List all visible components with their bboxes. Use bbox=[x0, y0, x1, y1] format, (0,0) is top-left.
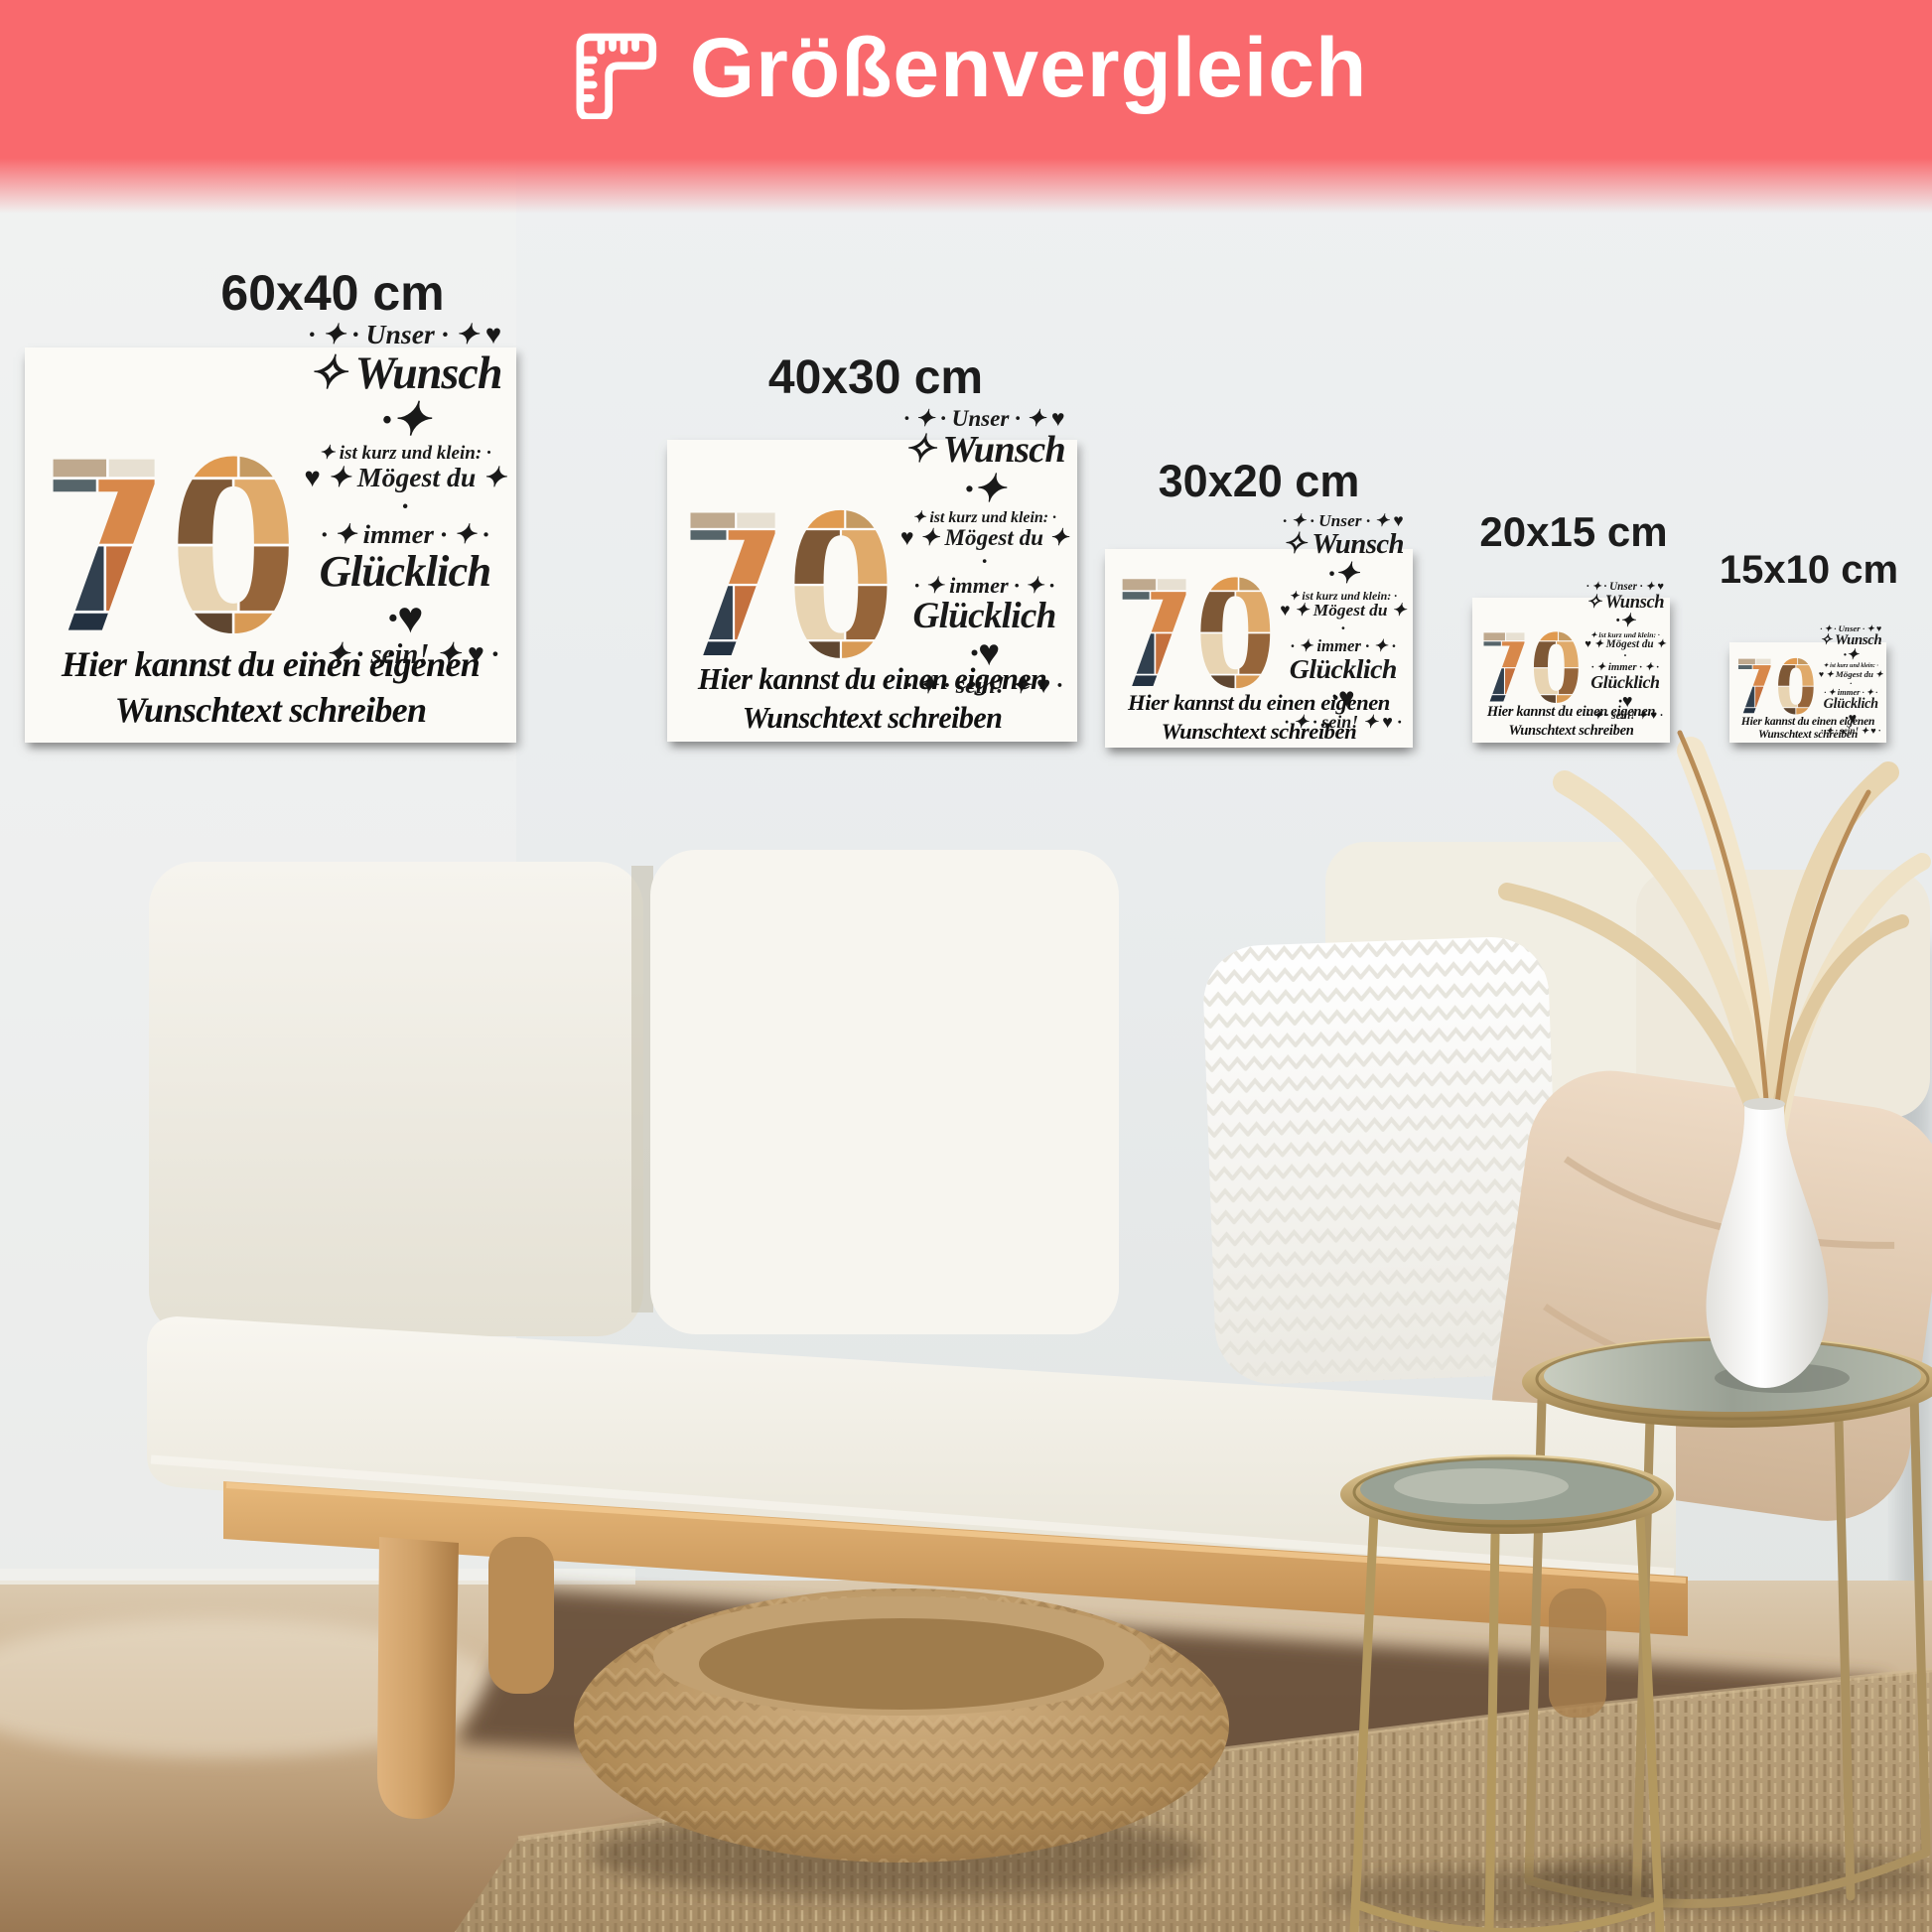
woven-pouf bbox=[574, 1588, 1229, 1898]
custom-text-line: Hier kannst du einen eigenen bbox=[675, 662, 1069, 697]
size-label-40x30: 40x30 cm bbox=[768, 350, 983, 405]
wish-line: ✧ Wunsch ·✦ bbox=[899, 431, 1069, 510]
canvas-print-60x40: 70 · ✦ · Unser · ✦ ♥ ✧ Wunsch ·✦ ✦ ist k… bbox=[25, 347, 516, 743]
custom-text-line: Hier kannst du einen eigenen bbox=[1732, 716, 1883, 728]
photo-collage-number-70: 70 bbox=[675, 446, 899, 660]
custom-text-block: Hier kannst du einen eigenen Wunschtext … bbox=[35, 636, 506, 738]
back-pillow-mid bbox=[650, 850, 1119, 1334]
wish-line: ♥ ✦ Mögest du ✦ · bbox=[1819, 670, 1883, 688]
wish-line: ♥ ✦ Mögest du ✦ · bbox=[899, 526, 1069, 574]
print-top-row: 70 · ✦ · Unser · ✦ ♥ ✧ Wunsch ·✦ ✦ ist k… bbox=[1732, 644, 1883, 715]
print-top-row: 70 · ✦ · Unser · ✦ ♥ ✧ Wunsch ·✦ ✦ ist k… bbox=[35, 354, 506, 636]
wish-line: · ✦ immer · ✦ · bbox=[304, 521, 506, 549]
print-top-row: 70 · ✦ · Unser · ✦ ♥ ✧ Wunsch ·✦ ✦ ist k… bbox=[1111, 553, 1407, 690]
custom-text-line: Wunschtext schreiben bbox=[35, 689, 506, 731]
custom-text-line: Hier kannst du einen eigenen bbox=[35, 643, 506, 685]
custom-text-line: Wunschtext schreiben bbox=[1111, 719, 1407, 745]
print-top-row: 70 · ✦ · Unser · ✦ ♥ ✧ Wunsch ·✦ ✦ ist k… bbox=[675, 446, 1069, 660]
wish-line: ♥ ✦ Mögest du ✦ · bbox=[1585, 639, 1666, 662]
wish-line: ✧ Wunsch ·✦ bbox=[1585, 594, 1666, 631]
custom-text-block: Hier kannst du einen eigenen Wunschtext … bbox=[1732, 716, 1883, 742]
wish-text-block: · ✦ · Unser · ✦ ♥ ✧ Wunsch ·✦ ✦ ist kurz… bbox=[1585, 601, 1666, 704]
canvas-print-15x10: 70 · ✦ · Unser · ✦ ♥ ✧ Wunsch ·✦ ✦ ist k… bbox=[1729, 642, 1886, 743]
bench-leg-rear bbox=[488, 1537, 554, 1694]
number-70-text: 70 bbox=[680, 475, 895, 660]
wish-text-block: · ✦ · Unser · ✦ ♥ ✧ Wunsch ·✦ ✦ ist kurz… bbox=[1280, 553, 1407, 690]
size-label-20x15: 20x15 cm bbox=[1479, 508, 1667, 556]
number-70-text: 70 bbox=[41, 413, 298, 636]
custom-text-line: Wunschtext schreiben bbox=[1476, 723, 1666, 740]
canvas-print-30x20: 70 · ✦ · Unser · ✦ ♥ ✧ Wunsch ·✦ ✦ ist k… bbox=[1105, 549, 1413, 748]
custom-text-line: Wunschtext schreiben bbox=[675, 701, 1069, 736]
photo-collage-number-70: 70 bbox=[35, 354, 304, 636]
print-top-row: 70 · ✦ · Unser · ✦ ♥ ✧ Wunsch ·✦ ✦ ist k… bbox=[1476, 601, 1666, 704]
size-label-15x10: 15x10 cm bbox=[1720, 548, 1898, 593]
canvas-print-40x30: 70 · ✦ · Unser · ✦ ♥ ✧ Wunsch ·✦ ✦ ist k… bbox=[667, 440, 1077, 742]
wish-text-block: · ✦ · Unser · ✦ ♥ ✧ Wunsch ·✦ ✦ ist kurz… bbox=[1819, 644, 1883, 715]
wish-line: · ✦ · Unser · ✦ ♥ bbox=[1585, 582, 1666, 594]
wish-line: · ✦ · Unser · ✦ ♥ bbox=[899, 407, 1069, 431]
custom-text-line: Wunschtext schreiben bbox=[1732, 729, 1883, 741]
size-label-60x40: 60x40 cm bbox=[220, 264, 444, 322]
wish-line: ✦ ist kurz und klein: · bbox=[899, 510, 1069, 527]
wish-text-block: · ✦ · Unser · ✦ ♥ ✧ Wunsch ·✦ ✦ ist kurz… bbox=[304, 354, 506, 636]
wish-line: ♥ ✦ Mögest du ✦ · bbox=[304, 464, 506, 521]
photo-collage-number-70: 70 bbox=[1732, 644, 1818, 715]
header-banner: Größenvergleich bbox=[0, 0, 1932, 213]
page-title: Größenvergleich bbox=[690, 22, 1368, 113]
wish-line: ♥ ✦ Mögest du ✦ · bbox=[1280, 602, 1407, 637]
wish-line: · ✦ immer · ✦ · bbox=[899, 574, 1069, 597]
size-comparison-graphic: Größenvergleich 60x40 cm 40x30 cm 30x20 … bbox=[0, 0, 1932, 1932]
wish-line: · ✦ · Unser · ✦ ♥ bbox=[304, 321, 506, 349]
custom-text-block: Hier kannst du einen eigenen Wunschtext … bbox=[1111, 690, 1407, 745]
custom-text-line: Hier kannst du einen eigenen bbox=[1111, 690, 1407, 716]
photo-collage-number-70: 70 bbox=[1111, 553, 1280, 690]
custom-text-block: Hier kannst du einen eigenen Wunschtext … bbox=[1476, 704, 1666, 741]
wish-line: · ✦ immer · ✦ · bbox=[1280, 637, 1407, 654]
number-70-text: 70 bbox=[1734, 644, 1817, 715]
number-70-text: 70 bbox=[1478, 615, 1582, 703]
wish-line: ✧ Wunsch ·✦ bbox=[1819, 633, 1883, 664]
wish-line: ✧ Wunsch ·✦ bbox=[1280, 530, 1407, 590]
wish-text-block: · ✦ · Unser · ✦ ♥ ✧ Wunsch ·✦ ✦ ist kurz… bbox=[899, 446, 1069, 660]
wish-line: ✧ Wunsch ·✦ bbox=[304, 349, 506, 445]
size-label-30x20: 30x20 cm bbox=[1159, 456, 1360, 507]
number-70-text: 70 bbox=[1115, 553, 1276, 690]
wish-line: Glücklich ·♥ bbox=[304, 548, 506, 640]
custom-text-line: Hier kannst du einen eigenen bbox=[1476, 704, 1666, 721]
corner-ruler-icon bbox=[565, 24, 660, 119]
photo-collage-number-70: 70 bbox=[1476, 601, 1585, 704]
bench-leg-front bbox=[377, 1537, 459, 1819]
custom-text-block: Hier kannst du einen eigenen Wunschtext … bbox=[675, 660, 1069, 738]
back-pillow-left bbox=[149, 862, 643, 1336]
canvas-print-20x15: 70 · ✦ · Unser · ✦ ♥ ✧ Wunsch ·✦ ✦ ist k… bbox=[1472, 598, 1670, 743]
